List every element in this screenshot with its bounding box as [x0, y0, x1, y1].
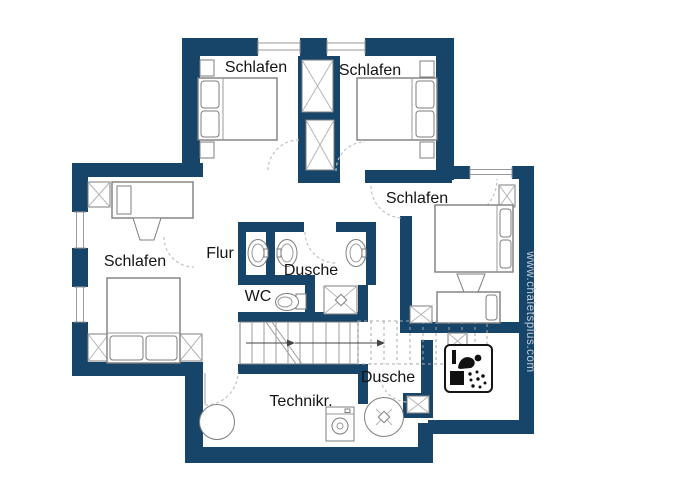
label-shower-middle: Dusche [284, 262, 338, 279]
window-left-1 [74, 212, 86, 248]
closet-x [407, 396, 429, 413]
sauna-icon [445, 345, 492, 392]
closet-x [499, 185, 515, 207]
label-wc: WC [245, 288, 272, 305]
pillow [486, 295, 497, 320]
closet-x [306, 120, 334, 170]
door-arc-bedroom-top-right [336, 142, 365, 171]
pillow [201, 111, 219, 137]
door-arc-shower-middle [305, 232, 336, 263]
floorplan-page: Schlafen Schlafen Schlafen Schlafen Flur… [0, 0, 700, 500]
toilet-icon [276, 294, 307, 311]
closet-x [410, 306, 432, 323]
pillow [500, 209, 511, 237]
pillow [416, 81, 434, 108]
closet-x [302, 60, 333, 112]
nightstand [200, 60, 214, 76]
door-arc-bedroom-top-left [268, 140, 299, 171]
washing-machine-icon [326, 407, 354, 441]
bedroom-left-furniture [107, 182, 193, 363]
nightstand [200, 142, 214, 158]
label-hallway: Flur [206, 245, 234, 262]
label-bedroom-top-right: Schlafen [339, 62, 401, 79]
shower-tray-icon [324, 286, 357, 314]
nightstand [420, 61, 434, 77]
sink-icon [346, 240, 366, 267]
round-shower-icon [365, 398, 404, 437]
closet-x [88, 182, 110, 207]
window-top-1 [258, 40, 300, 54]
floorplan-drawing: Schlafen Schlafen Schlafen Schlafen Flur… [0, 0, 700, 500]
label-technical-room: Technikr. [269, 393, 332, 410]
pillow [201, 81, 219, 108]
door-arc-bedroom-left [164, 237, 194, 267]
pillow [500, 240, 511, 268]
window-left-2 [74, 287, 86, 322]
sink-icon [248, 240, 268, 267]
pillow [110, 336, 143, 360]
closet-x [88, 334, 109, 361]
pillow [416, 111, 434, 137]
closet-x [180, 334, 202, 361]
nightstand [420, 142, 434, 158]
chair [457, 274, 485, 292]
desk-drawer [117, 186, 131, 214]
watermark-text: www.chaletsplus.com [524, 250, 536, 372]
door-arc-technical-room [205, 372, 238, 405]
chair [133, 218, 161, 240]
label-bedroom-left: Schlafen [104, 253, 166, 270]
window-right-bedroom [470, 167, 512, 178]
label-bedroom-right: Schlafen [386, 190, 448, 207]
label-bedroom-top-left: Schlafen [225, 59, 287, 76]
boiler-tank-icon [200, 405, 235, 440]
bedroom-right-furniture [435, 205, 513, 323]
label-shower-bottom: Dusche [361, 369, 415, 386]
pillow [146, 336, 177, 360]
window-top-2 [327, 40, 365, 54]
